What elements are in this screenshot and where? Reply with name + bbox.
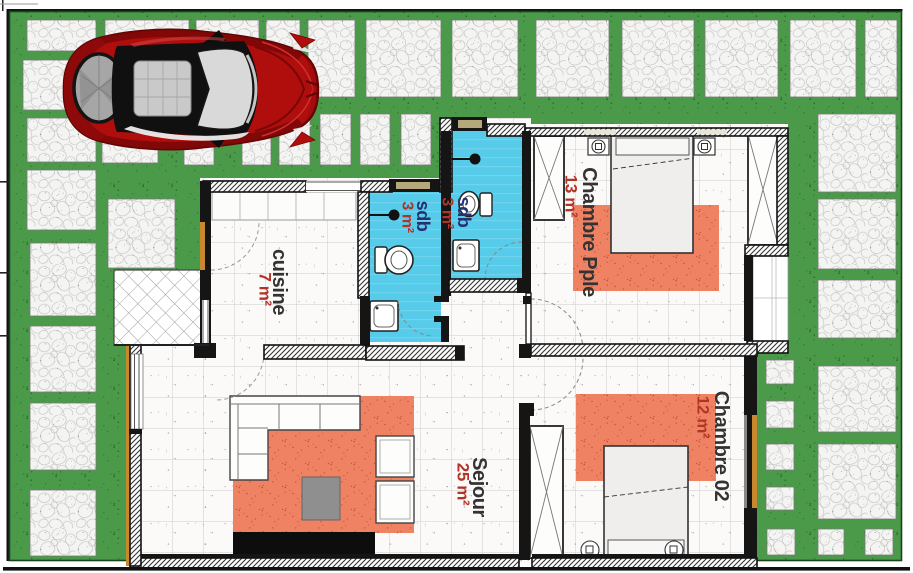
svg-text:sdb: sdb bbox=[454, 197, 474, 228]
svg-text:3 m²: 3 m² bbox=[399, 201, 416, 232]
svg-text:7 m²: 7 m² bbox=[256, 272, 275, 306]
svg-text:25 m²: 25 m² bbox=[454, 463, 473, 506]
svg-text:3 m²: 3 m² bbox=[439, 197, 456, 228]
svg-text:12 m²: 12 m² bbox=[694, 396, 713, 439]
svg-text:13 m²: 13 m² bbox=[562, 175, 581, 218]
